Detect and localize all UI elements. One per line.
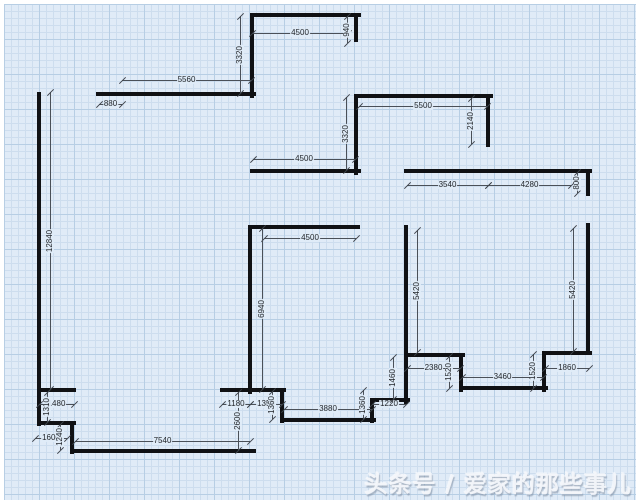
wall-segment: [586, 223, 590, 355]
wall-segment: [37, 388, 76, 392]
dimension-label: 940: [343, 22, 351, 37]
dimension-label: 3320: [342, 124, 350, 144]
dimension-label: 1310: [43, 397, 51, 417]
wall-segment: [404, 169, 592, 173]
floorplan-canvas: 4500940332055608801284055002140332045003…: [0, 0, 640, 504]
grid-background: [4, 4, 636, 500]
wall-segment: [37, 92, 41, 394]
wall-segment: [586, 169, 590, 196]
wall-segment: [404, 225, 408, 404]
wall-segment: [250, 225, 360, 229]
dimension-label: 4500: [294, 155, 314, 163]
dimension-label: 5420: [413, 281, 421, 301]
dimension-label: 1180: [226, 400, 245, 408]
dimension-label: 12840: [46, 228, 54, 252]
dimension-label: 4500: [290, 29, 310, 37]
dimension-label: 4500: [300, 234, 320, 242]
wall-segment: [542, 351, 592, 355]
dimension-label: 5560: [177, 76, 197, 84]
wall-segment: [96, 92, 256, 96]
dimension-label: 7540: [153, 437, 173, 445]
dimension-label: 3460: [493, 373, 513, 381]
dimension-label: 3880: [318, 405, 338, 413]
dimension-label: 2380: [424, 364, 444, 372]
dimension-label: 5500: [413, 102, 433, 110]
dimension-label: 6940: [258, 299, 266, 319]
dimension-label: 2140: [467, 111, 475, 131]
dimension-label: 1360: [268, 395, 276, 415]
watermark-text: 头条号 / 爱家的那些事儿: [365, 465, 632, 499]
dimension-label: 800: [573, 175, 581, 190]
wall-segment: [70, 449, 256, 453]
dimension-label: 3540: [438, 181, 458, 189]
wall-segment: [250, 13, 254, 98]
dimension-label: 880: [103, 100, 118, 108]
dimension-label: 1460: [389, 368, 397, 388]
dimension-label: 1520: [529, 361, 537, 381]
dimension-label: 4280: [520, 181, 540, 189]
dimension-label: 1860: [557, 364, 577, 372]
dimension-label: 1360: [359, 395, 367, 415]
wall-segment: [354, 13, 358, 42]
dimension-label: 3320: [236, 45, 244, 65]
dimension-label: 1240: [56, 427, 64, 447]
wall-segment: [250, 13, 361, 17]
wall-segment: [248, 225, 252, 394]
dimension-label: 5420: [569, 280, 577, 300]
dimension-label: 1520: [445, 362, 453, 382]
dimension-label: 2600: [234, 411, 242, 431]
dimension-label: 1220: [379, 400, 399, 408]
